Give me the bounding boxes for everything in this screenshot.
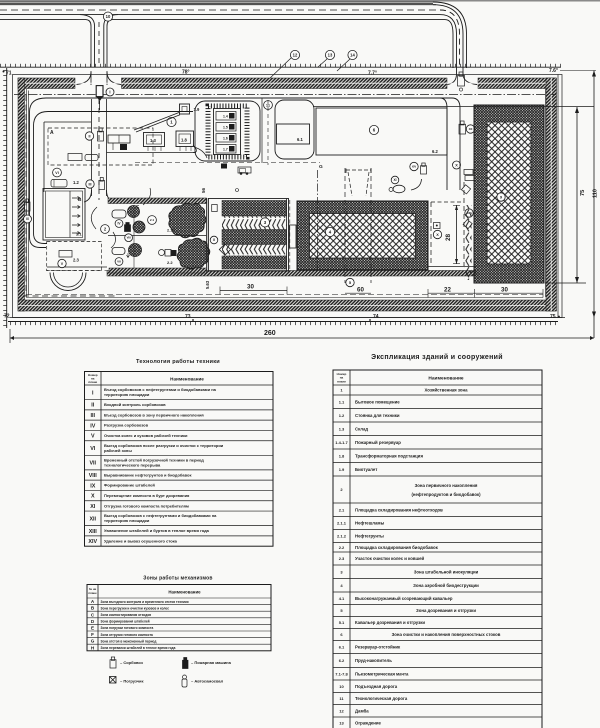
svg-text:XI: XI [90,504,96,510]
svg-text:13: 13 [339,720,344,725]
svg-text:Зоны работы механизмов: Зоны работы механизмов [143,575,212,582]
svg-text:Зона первичного накопления: Зона первичного накопления [415,483,478,488]
svg-text:74: 74 [373,314,379,320]
svg-text:1.8: 1.8 [339,453,345,458]
svg-text:A: A [91,599,95,604]
svg-text:1.8: 1.8 [181,138,187,143]
svg-text:VIII: VIII [89,473,98,479]
svg-text:Увлажнение штабелей и буртов в: Увлажнение штабелей и буртов в теплое вр… [104,528,210,533]
svg-text:A: A [50,130,54,136]
svg-text:I: I [92,390,94,396]
svg-text:C: C [91,612,95,617]
svg-text:Нефтегрунты: Нефтегрунты [355,534,384,539]
svg-text:XIII: XIII [89,529,98,535]
svg-text:F: F [91,632,94,637]
svg-text:(нефтепродуктов и биодобавок): (нефтепродуктов и биодобавок) [411,492,481,497]
svg-text:6.2: 6.2 [432,149,438,154]
svg-text:G: G [319,164,323,170]
svg-text:XIV: XIV [412,164,417,168]
svg-text:рабочей зоны: рабочей зоны [104,448,132,453]
svg-text:2.1: 2.1 [76,232,82,237]
svg-text:3: 3 [340,569,343,574]
svg-text:VI: VI [55,171,58,175]
svg-text:H: H [91,645,95,650]
svg-text:Перемещение компоста в бурт до: Перемещение компоста в бурт дозревания [104,493,190,498]
svg-text:1.9: 1.9 [339,467,345,472]
svg-text:Дамба: Дамба [355,708,369,713]
svg-text:6: 6 [340,632,343,637]
svg-text:плане: плане [337,379,346,383]
svg-text:1.7: 1.7 [223,148,228,152]
svg-text:– Сорбовоз: – Сорбовоз [120,660,143,665]
svg-text:Кавальер дозревания и отгрузки: Кавальер дозревания и отгрузки [355,620,425,625]
svg-text:III: III [91,413,96,419]
svg-text:Нефтешламы: Нефтешламы [355,521,385,526]
svg-text:Удаление и вывоз осушенного ст: Удаление и вывоз осушенного стока [104,538,178,543]
svg-text:Стоянка для техники: Стоянка для техники [355,413,400,418]
svg-text:10: 10 [339,684,344,689]
svg-text:1.1: 1.1 [339,399,345,404]
svg-text:56: 56 [201,187,206,193]
svg-text:Зона отстоя в межсменный перио: Зона отстоя в межсменный период [101,639,157,643]
svg-text:11: 11 [339,696,344,701]
svg-text:Въезд сорбовозов в зону первич: Въезд сорбовозов в зону первичного накоп… [104,412,204,417]
svg-text:VII: VII [117,260,121,264]
svg-text:1.9: 1.9 [194,107,200,112]
svg-text:4.1: 4.1 [339,596,345,601]
svg-text:1: 1 [340,388,343,393]
svg-text:2.1.2: 2.1.2 [167,229,175,233]
svg-text:Склад: Склад [355,426,368,431]
svg-text:Наименование: Наименование [168,590,201,595]
svg-text:2.1: 2.1 [150,218,155,222]
svg-text:2.3: 2.3 [339,556,345,561]
svg-text:6.1: 6.1 [339,645,345,650]
svg-text:Площадка складирования нефтеот: Площадка складирования нефтеотходов [355,507,443,512]
svg-text:II: II [89,134,91,138]
svg-text:G: G [91,639,95,644]
svg-text:14: 14 [350,53,355,58]
svg-text:2: 2 [340,487,343,492]
svg-text:территорию площадки: территорию площадки [104,392,150,397]
svg-text:– Погрузчик: – Погрузчик [120,679,144,684]
svg-text:10: 10 [106,14,111,19]
svg-text:B: B [91,606,95,611]
svg-text:Зона дозревания и отгрузки: Зона дозревания и отгрузки [416,608,476,613]
svg-text:– Пожарная машина: – Пожарная машина [191,660,232,665]
svg-text:VII: VII [89,461,96,467]
svg-text:Технология работы техники: Технология работы техники [136,358,220,365]
svg-text:XII: XII [469,127,473,131]
svg-text:Зона перегрузки и очистки кузо: Зона перегрузки и очистки кузовов и коле… [101,606,170,610]
svg-text:плане: плане [88,380,97,384]
svg-text:28: 28 [445,233,452,241]
svg-text:Трансформаторная подстанция: Трансформаторная подстанция [355,453,423,458]
svg-text:1.4-1.7: 1.4-1.7 [335,440,348,445]
svg-text:6.2: 6.2 [339,658,345,663]
svg-text:22: 22 [444,287,451,294]
svg-text:5: 5 [340,608,343,613]
svg-text:Пожарный резервуар: Пожарный резервуар [355,440,401,445]
svg-text:технологического перерыва: технологического перерыва [104,462,161,467]
svg-text:Зона штабельной инокуляции: Зона штабельной инокуляции [414,569,479,574]
svg-text:2.2: 2.2 [167,260,173,265]
svg-text:D: D [91,619,95,624]
svg-text:Формирование штабелей: Формирование штабелей [104,483,155,488]
svg-text:Бытовое помещение: Бытовое помещение [355,399,400,404]
svg-text:1.4: 1.4 [223,115,228,119]
svg-text:4: 4 [340,583,343,588]
svg-text:2.2: 2.2 [339,545,345,550]
svg-text:Очистка колес и кузовов рабоче: Очистка колес и кузовов рабочей техники [104,433,188,438]
svg-text:60: 60 [357,287,364,294]
svg-text:Зона перевалки штабелей в тепл: Зона перевалки штабелей в теплое время г… [101,646,176,650]
svg-text:Отгрузка готового компоста пот: Отгрузка готового компоста потребителям [104,503,189,508]
svg-text:13: 13 [328,53,333,58]
svg-text:E: E [91,626,94,631]
svg-text:плане: плане [88,591,97,595]
svg-text:Подъездная дорога: Подъездная дорога [355,684,398,689]
svg-text:территорию площадки: территорию площадки [104,518,150,523]
svg-text:– Автосамосвал: – Автосамосвал [191,679,224,684]
svg-text:30: 30 [501,287,508,294]
svg-text:III: III [89,182,92,186]
svg-text:Зона погрузки готового компост: Зона погрузки готового компоста [101,626,154,630]
svg-text:75: 75 [550,314,556,320]
svg-text:XII: XII [89,516,96,522]
svg-text:2.1.2: 2.1.2 [337,534,347,539]
svg-text:Зона формирования штабелей: Зона формирования штабелей [101,620,150,624]
svg-text:IV: IV [90,423,95,429]
svg-text:Зона въездного контроля и врем: Зона въездного контроля и временного отс… [101,600,189,604]
svg-text:Биотуалет: Биотуалет [355,467,377,472]
svg-text:XI: XI [393,178,396,182]
svg-text:Входной контроль сорбовозов: Входной контроль сорбовозов [104,402,166,407]
svg-text:260: 260 [264,330,276,337]
svg-text:30: 30 [247,284,254,291]
svg-text:2.1.1: 2.1.1 [337,521,347,526]
svg-text:II: II [91,403,94,409]
svg-text:Ограждение: Ограждение [355,720,382,725]
svg-text:Хозяйственная зона: Хозяйственная зона [424,388,468,393]
svg-text:Высоконагружаемый созревающий: Высоконагружаемый созревающий кавальер [355,596,453,601]
svg-text:Выравнивание нефтегрунтов и би: Выравнивание нефтегрунтов и биодобавок [104,472,191,477]
svg-text:110: 110 [593,189,599,198]
svg-text:Участок очистки колес и ковшей: Участок очистки колес и ковшей [355,556,424,561]
svg-text:Экспликация зданий и сооружени: Экспликация зданий и сооружений [371,353,503,361]
svg-text:X: X [455,163,458,167]
svg-text:VIII: VIII [127,236,131,240]
svg-text:12: 12 [339,708,344,713]
svg-text:12: 12 [293,53,298,58]
svg-text:2.1: 2.1 [339,507,345,512]
svg-text:IX: IX [90,483,95,489]
svg-text:Площадка складирования биодоба: Площадка складирования биодобавок [355,545,439,550]
svg-text:7.7°: 7.7° [368,71,377,77]
svg-text:Зона компостирования отходов: Зона компостирования отходов [101,613,152,617]
svg-text:2.3: 2.3 [73,258,79,263]
svg-text:X: X [436,233,439,237]
svg-text:Зона отгрузки готового компост: Зона отгрузки готового компоста [101,633,154,637]
svg-text:VI: VI [90,446,96,452]
svg-text:5.63: 5.63 [205,280,210,289]
svg-text:Наименование: Наименование [170,377,204,382]
svg-text:V: V [91,434,95,440]
svg-text:1.5: 1.5 [223,126,228,130]
svg-text:Зона очистки и накопления пове: Зона очистки и накопления поверхностных … [392,632,501,637]
svg-text:6.1: 6.1 [297,137,303,142]
svg-text:I: I [109,90,110,95]
svg-text:1.2: 1.2 [339,413,345,418]
svg-text:7.6°: 7.6° [549,68,558,74]
svg-text:Пьезометрическая мачта: Пьезометрическая мачта [355,671,409,676]
svg-text:B: B [78,197,82,203]
svg-text:7.1-7.8: 7.1-7.8 [335,671,348,676]
svg-text:1.3: 1.3 [339,426,345,431]
svg-text:Наименование: Наименование [428,376,464,382]
svg-text:1.2: 1.2 [73,180,79,185]
svg-text:1.6: 1.6 [223,137,228,141]
svg-text:72: 72 [4,314,10,320]
svg-text:5.1: 5.1 [339,620,345,625]
svg-text:Разгрузка сорбовозов: Разгрузка сорбовозов [104,423,149,428]
svg-text:75: 75 [580,190,586,196]
svg-text:Пруд-накопитель: Пруд-накопитель [355,658,392,663]
svg-text:XIV: XIV [88,539,97,545]
svg-text:73: 73 [185,314,191,320]
svg-text:Зона аэробной биодеструкции: Зона аэробной биодеструкции [413,583,479,588]
svg-text:Технологическая дорога: Технологическая дорога [355,696,408,701]
svg-text:X: X [91,494,95,500]
svg-text:Резервуар-отстойник: Резервуар-отстойник [355,645,401,650]
